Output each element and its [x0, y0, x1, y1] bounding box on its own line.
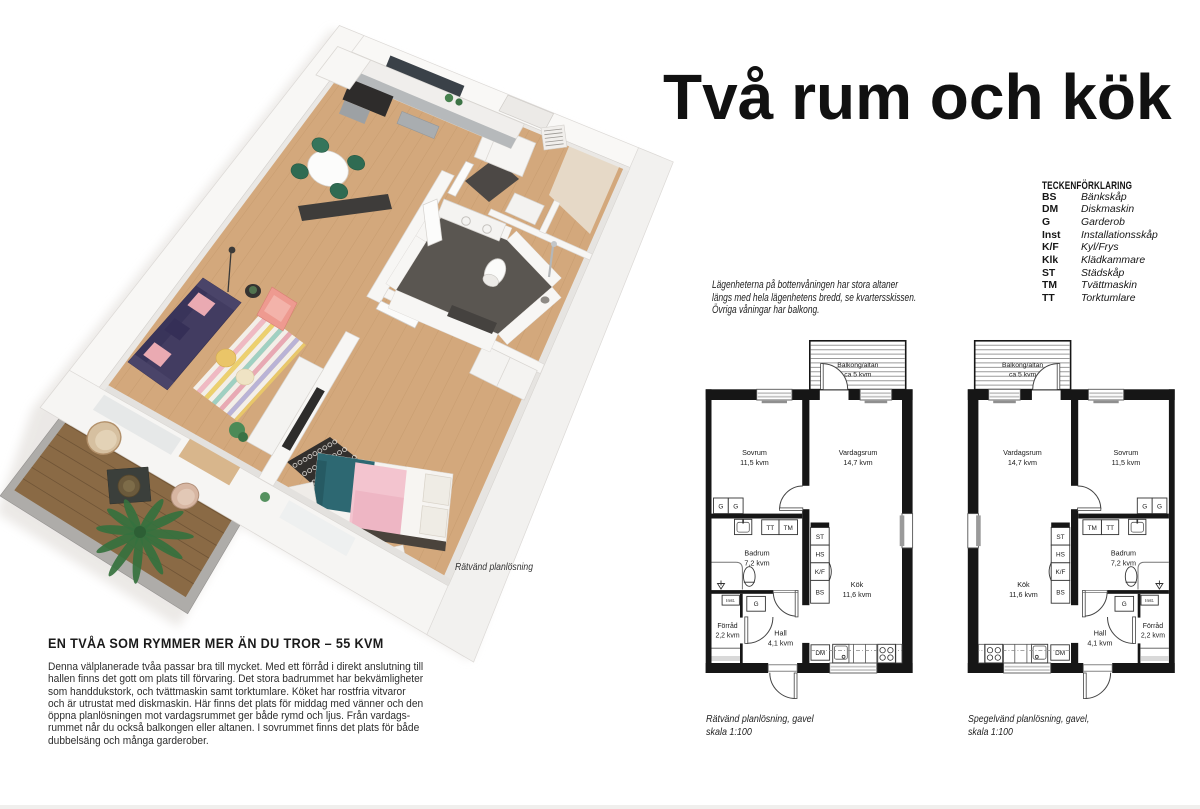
- svg-text:4,1 kvm: 4,1 kvm: [768, 639, 793, 648]
- svg-text:TT: TT: [766, 525, 774, 532]
- svg-text:K/F: K/F: [1056, 569, 1066, 576]
- svg-text:DM: DM: [1055, 650, 1065, 657]
- svg-text:11,6 kvm: 11,6 kvm: [843, 590, 872, 599]
- svg-text:HS: HS: [815, 551, 824, 558]
- svg-text:11,5 kvm: 11,5 kvm: [740, 458, 769, 467]
- svg-text:Balkong/altan: Balkong/altan: [837, 362, 878, 369]
- svg-text:Inst.: Inst.: [726, 598, 735, 604]
- svg-text:2,2 kvm: 2,2 kvm: [1141, 633, 1165, 640]
- svg-text:G: G: [718, 503, 723, 510]
- svg-text:ca 5 kvm: ca 5 kvm: [1009, 372, 1037, 379]
- svg-text:ST: ST: [1056, 534, 1064, 541]
- svg-text:K/F: K/F: [815, 569, 825, 576]
- svg-text:Förråd: Förråd: [1143, 622, 1163, 630]
- svg-text:2,2 kvm: 2,2 kvm: [715, 633, 739, 640]
- svg-text:14,7 kvm: 14,7 kvm: [1008, 458, 1037, 467]
- svg-text:Vardagsrum: Vardagsrum: [839, 448, 878, 457]
- svg-text:Förråd: Förråd: [717, 622, 737, 630]
- svg-text:TT: TT: [1106, 525, 1114, 532]
- svg-text:BS: BS: [816, 589, 825, 596]
- svg-text:TM: TM: [1088, 525, 1097, 532]
- svg-text:G: G: [733, 503, 738, 510]
- svg-text:14,7 kvm: 14,7 kvm: [843, 458, 872, 467]
- svg-text:7,2 kvm: 7,2 kvm: [1111, 559, 1136, 568]
- svg-text:Inst.: Inst.: [1145, 598, 1154, 604]
- svg-text:ST: ST: [816, 534, 824, 541]
- svg-text:G: G: [1122, 601, 1127, 608]
- svg-text:Kök: Kök: [851, 580, 864, 589]
- svg-text:DM: DM: [815, 650, 825, 657]
- svg-text:Badrum: Badrum: [1111, 549, 1136, 558]
- svg-text:11,5 kvm: 11,5 kvm: [1112, 458, 1141, 467]
- svg-text:G: G: [1142, 503, 1147, 510]
- svg-text:Hall: Hall: [774, 629, 787, 638]
- svg-text:HS: HS: [1056, 551, 1065, 558]
- svg-text:Kök: Kök: [1017, 580, 1030, 589]
- svg-text:Sovrum: Sovrum: [1114, 448, 1139, 457]
- svg-text:BS: BS: [1056, 589, 1065, 596]
- svg-text:TM: TM: [784, 525, 793, 532]
- svg-text:7,2 kvm: 7,2 kvm: [744, 559, 769, 568]
- svg-text:4,1 kvm: 4,1 kvm: [1087, 639, 1112, 648]
- svg-text:Vardagsrum: Vardagsrum: [1003, 448, 1042, 457]
- svg-text:Balkong/altan: Balkong/altan: [1002, 362, 1043, 369]
- svg-text:11,6 kvm: 11,6 kvm: [1009, 590, 1038, 599]
- svg-text:Hall: Hall: [1094, 629, 1107, 638]
- svg-text:G: G: [1157, 503, 1162, 510]
- svg-text:G: G: [754, 601, 759, 608]
- svg-text:ca 5 kvm: ca 5 kvm: [844, 372, 872, 379]
- svg-text:Sovrum: Sovrum: [742, 448, 767, 457]
- svg-text:Badrum: Badrum: [744, 549, 769, 558]
